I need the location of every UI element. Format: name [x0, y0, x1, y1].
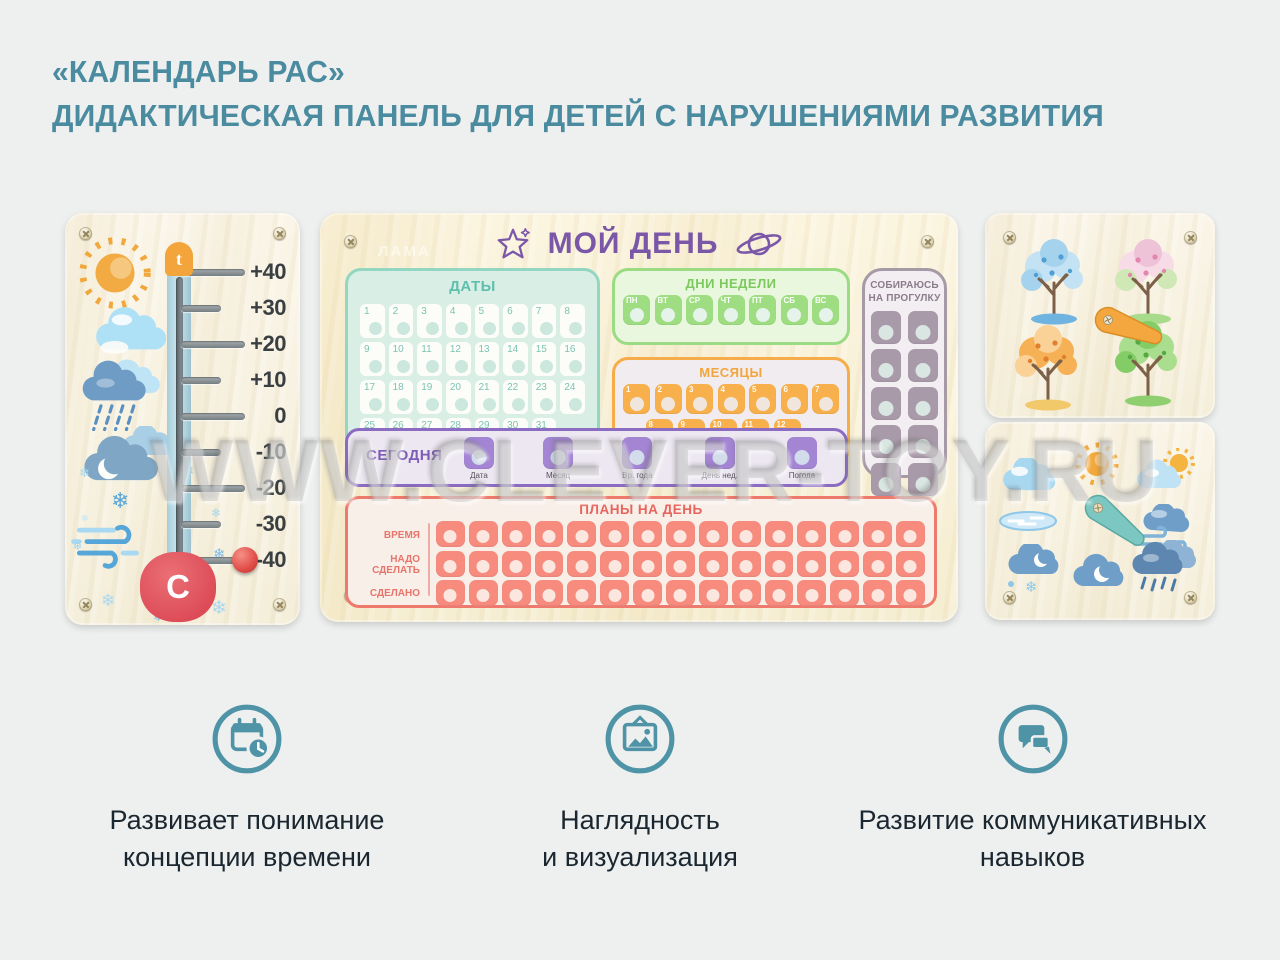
walk-grid [865, 311, 944, 496]
card-dot [838, 589, 851, 602]
today-label: СЕГОДНЯ [366, 447, 454, 464]
plan-card [567, 551, 596, 577]
date-number: 23 [536, 382, 547, 393]
thermo-tick-icon [181, 521, 221, 528]
date-slot-dot [426, 360, 439, 373]
plan-card [863, 551, 892, 577]
thermo-tick-icon [181, 413, 245, 420]
today-slot-label: Вр. года [622, 471, 652, 480]
thermo-scale-row: +40 [181, 265, 286, 279]
thermo-scale-label: -20 [256, 475, 286, 501]
card-dot [630, 308, 644, 322]
month-card: 7 [812, 384, 839, 414]
plan-card [666, 521, 695, 547]
date-number: 24 [564, 382, 575, 393]
thermometer-bulb-symbol: C [166, 568, 190, 606]
date-slot-dot [369, 398, 382, 411]
card-dot [543, 530, 556, 543]
snowflake-icon: ❄ [101, 593, 115, 610]
plans-divider [428, 523, 430, 596]
weekday-label: СБ [784, 296, 796, 305]
month-card: 1 [623, 384, 650, 414]
today-slot: День нед. [702, 437, 738, 480]
date-number: 2 [393, 306, 399, 317]
month-number: 3 [689, 385, 693, 394]
snowflake-icon: ❄ [73, 541, 82, 552]
weather-board: ❄ [985, 422, 1215, 620]
card-dot [510, 560, 523, 573]
plan-card [896, 551, 925, 577]
plan-card [765, 521, 794, 547]
walk-section: СОБИРАЮСЬ НА ПРОГУЛКУ [862, 268, 947, 478]
thermometer-bulb: C [140, 552, 216, 622]
plan-card [666, 551, 695, 577]
date-number: 18 [393, 382, 404, 393]
walk-card [908, 349, 938, 382]
date-slot-dot [455, 322, 468, 335]
today-section: СЕГОДНЯ ДатаМесяцВр. годаДень нед.Погода [345, 428, 848, 487]
page-title-line2: ДИДАКТИЧЕСКАЯ ПАНЕЛЬ ДЛЯ ДЕТЕЙ С НАРУШЕН… [52, 94, 1104, 138]
card-dot [630, 450, 645, 465]
plans-cells [436, 521, 925, 610]
date-cell: 20 [446, 380, 471, 414]
card-dot [819, 397, 833, 411]
plan-card [469, 580, 498, 606]
today-slot-label: Месяц [546, 471, 570, 480]
date-slot-dot [569, 322, 582, 335]
date-cell: 13 [475, 342, 500, 376]
card-dot [916, 477, 931, 492]
plan-card [567, 580, 596, 606]
page: «КАЛЕНДАРЬ РАС» ДИДАКТИЧЕСКАЯ ПАНЕЛЬ ДЛЯ… [0, 0, 1280, 960]
date-number: 11 [421, 344, 431, 355]
date-slot-dot [483, 398, 496, 411]
card-dot [916, 439, 931, 454]
date-cell: 17 [360, 380, 385, 414]
card-dot [674, 530, 687, 543]
date-cell: 21 [475, 380, 500, 414]
plan-card [502, 580, 531, 606]
plan-card [830, 580, 859, 606]
card-dot [608, 530, 621, 543]
thermo-scale-row: -30 [181, 517, 286, 531]
walk-card [908, 463, 938, 496]
thermo-scale-label: 0 [274, 403, 286, 429]
cloud-moon-icon [1069, 552, 1127, 590]
card-dot [879, 325, 894, 340]
date-slot-dot [540, 360, 553, 373]
plan-card [797, 521, 826, 547]
date-number: 15 [536, 344, 547, 355]
thermo-tick-icon [181, 485, 245, 492]
month-card: 3 [686, 384, 713, 414]
plans-row [436, 551, 925, 577]
plan-card [896, 580, 925, 606]
card-dot [641, 530, 654, 543]
date-slot-dot [483, 360, 496, 373]
date-slot-dot [455, 398, 468, 411]
thermometer-slider-knob [232, 547, 258, 573]
months-row1: 1234567 [623, 384, 839, 414]
plan-card [732, 551, 761, 577]
today-slot-label: Дата [470, 471, 488, 480]
date-number: 16 [564, 344, 575, 355]
weekday-label: ПТ [752, 296, 763, 305]
card-dot [756, 397, 770, 411]
today-slot: Месяц [543, 437, 573, 480]
page-title: «КАЛЕНДАРЬ РАС» ДИДАКТИЧЕСКАЯ ПАНЕЛЬ ДЛЯ… [52, 50, 1104, 138]
card-dot [756, 308, 770, 322]
screw-icon [273, 227, 286, 240]
today-slot-label: День нед. [702, 471, 738, 480]
card-dot [879, 439, 894, 454]
card-dot [904, 560, 917, 573]
card-dot [904, 530, 917, 543]
thermo-scale-row: +10 [181, 373, 286, 387]
plans-section: ПЛАНЫ НА ДЕНЬ ВРЕМЯНАДО СДЕЛАТЬСДЕЛАНО [345, 496, 937, 608]
date-slot-dot [569, 398, 582, 411]
date-number: 6 [507, 306, 513, 317]
card-dot [740, 589, 753, 602]
date-number: 10 [393, 344, 404, 355]
card-dot [773, 560, 786, 573]
today-card [543, 437, 573, 469]
card-dot [608, 589, 621, 602]
plan-card [732, 521, 761, 547]
date-slot-dot [540, 398, 553, 411]
plan-card [765, 551, 794, 577]
today-card [705, 437, 735, 469]
thermometer-board: ❄❄❄❄❄❄❄❄❄❄❄ t +40+30+20+100-10-20-30-40 … [65, 213, 300, 625]
card-dot [575, 560, 588, 573]
today-card [622, 437, 652, 469]
rain-cloud-icon [75, 353, 167, 435]
weekdays-row: ПНВТСРЧТПТСБВС [623, 295, 839, 325]
plan-card [830, 551, 859, 577]
plan-card [600, 521, 629, 547]
thermo-scale-label: +20 [250, 331, 286, 357]
card-dot [787, 397, 801, 411]
my-day-header: МОЙ ДЕНЬ [320, 225, 958, 263]
card-dot [674, 589, 687, 602]
card-dot [444, 589, 457, 602]
chat-icon [996, 702, 1070, 776]
card-dot [712, 450, 727, 465]
date-cell: 24 [560, 380, 585, 414]
cloud-icon [87, 301, 179, 359]
thermo-scale-row: +20 [181, 337, 286, 351]
date-number: 13 [479, 344, 490, 355]
card-dot [879, 401, 894, 416]
month-number: 7 [815, 385, 819, 394]
date-cell: 6 [503, 304, 528, 338]
thermo-scale-row: -20 [181, 481, 286, 495]
date-number: 8 [564, 306, 570, 317]
card-dot [630, 397, 644, 411]
weekday-label: ПН [626, 296, 638, 305]
plan-card [600, 551, 629, 577]
plan-card [863, 580, 892, 606]
date-cell: 11 [417, 342, 442, 376]
date-cell: 19 [417, 380, 442, 414]
plan-card [896, 521, 925, 547]
date-number: 5 [479, 306, 485, 317]
plan-card [633, 521, 662, 547]
walk-card [908, 311, 938, 344]
thermo-scale-row: +30 [181, 301, 286, 315]
month-number: 4 [721, 385, 725, 394]
date-number: 4 [450, 306, 456, 317]
snowflake-icon: ❄ [111, 491, 129, 513]
month-card: 4 [718, 384, 745, 414]
today-slot: Дата [464, 437, 494, 480]
card-dot [510, 589, 523, 602]
today-card [787, 437, 817, 469]
thermo-scale-label: +10 [250, 367, 286, 393]
feature-caption: Развивает понимание концепции времени [110, 802, 385, 876]
card-dot [904, 589, 917, 602]
card-dot [641, 589, 654, 602]
plans-row-label: СДЕЛАНО [354, 579, 420, 608]
date-number: 12 [450, 344, 461, 355]
plans-row-labels: ВРЕМЯНАДО СДЕЛАТЬСДЕЛАНО [354, 521, 420, 608]
walk-card [871, 387, 901, 420]
date-number: 1 [364, 306, 370, 317]
date-slot-dot [369, 322, 382, 335]
walk-card [871, 425, 901, 458]
plan-card [535, 551, 564, 577]
date-slot-dot [397, 398, 410, 411]
date-number: 17 [364, 382, 375, 393]
weekday-label: ВТ [658, 296, 668, 305]
plans-row-label: ВРЕМЯ [354, 521, 420, 550]
weekday-card: СР [686, 295, 713, 325]
card-dot [740, 560, 753, 573]
snowflake-icon: ❄ [79, 467, 90, 480]
date-slot-dot [397, 360, 410, 373]
dates-title: ДАТЫ [348, 278, 597, 295]
weekday-card: СБ [781, 295, 808, 325]
plan-card [699, 551, 728, 577]
date-slot-dot [426, 398, 439, 411]
card-dot [740, 530, 753, 543]
month-card: 5 [749, 384, 776, 414]
weekday-card: ПН [623, 295, 650, 325]
card-dot [707, 560, 720, 573]
card-dot [575, 530, 588, 543]
card-dot [787, 308, 801, 322]
feature-communication: Развитие коммуникативных навыков [845, 702, 1220, 876]
card-dot [575, 589, 588, 602]
weekdays-title: ДНИ НЕДЕЛИ [615, 276, 847, 291]
plan-card [797, 551, 826, 577]
month-card: 2 [655, 384, 682, 414]
cloud-icon [999, 458, 1059, 494]
card-dot [838, 530, 851, 543]
date-slot-dot [569, 360, 582, 373]
card-dot [773, 530, 786, 543]
walk-card [871, 311, 901, 344]
walk-title: СОБИРАЮСЬ НА ПРОГУЛКУ [865, 279, 944, 305]
card-dot [916, 325, 931, 340]
today-slot: Вр. года [622, 437, 652, 480]
svg-text:❄: ❄ [1025, 578, 1038, 596]
plan-card [567, 521, 596, 547]
plan-card [535, 521, 564, 547]
date-slot-dot [512, 398, 525, 411]
walk-card [908, 425, 938, 458]
thermo-tick-icon [181, 341, 245, 348]
date-cell: 14 [503, 342, 528, 376]
screw-icon [273, 598, 286, 611]
card-dot [707, 589, 720, 602]
card-dot [551, 450, 566, 465]
month-number: 2 [658, 385, 662, 394]
thermo-scale-label: +40 [250, 259, 286, 285]
card-dot [773, 589, 786, 602]
date-cell: 3 [417, 304, 442, 338]
walk-card [871, 349, 901, 382]
date-cell: 12 [446, 342, 471, 376]
winter-tree-icon [1013, 235, 1095, 325]
screw-icon [1184, 591, 1197, 604]
date-number: 19 [421, 382, 432, 393]
plan-card [436, 551, 465, 577]
feature-caption: Развитие коммуникативных навыков [858, 802, 1206, 876]
today-card [464, 437, 494, 469]
card-dot [477, 589, 490, 602]
card-dot [693, 397, 707, 411]
card-dot [871, 530, 884, 543]
weekdays-section: ДНИ НЕДЕЛИ ПНВТСРЧТПТСБВС [612, 268, 850, 345]
weekday-card: ВС [812, 295, 839, 325]
screw-icon [79, 598, 92, 611]
card-dot [444, 560, 457, 573]
date-cell: 18 [389, 380, 414, 414]
plan-card [633, 551, 662, 577]
date-slot-dot [369, 360, 382, 373]
card-dot [724, 397, 738, 411]
date-cell: 7 [532, 304, 557, 338]
plans-row [436, 580, 925, 606]
feature-caption: Наглядность и визуализация [542, 802, 738, 876]
card-dot [871, 560, 884, 573]
card-dot [805, 589, 818, 602]
date-cell: 1 [360, 304, 385, 338]
walk-card [871, 463, 901, 496]
thermo-scale-label: -10 [256, 439, 286, 465]
plan-card [830, 521, 859, 547]
card-dot [794, 450, 809, 465]
date-cell: 8 [560, 304, 585, 338]
weekday-card: ВТ [655, 295, 682, 325]
thermo-scale-label: -30 [256, 511, 286, 537]
plan-card [699, 521, 728, 547]
card-dot [879, 363, 894, 378]
card-dot [543, 589, 556, 602]
date-cell: 5 [475, 304, 500, 338]
card-dot [724, 308, 738, 322]
weekday-card: ЧТ [718, 295, 745, 325]
my-day-board: ЛАМА МОЙ ДЕНЬ ДАТЫ 123456789101112131415… [320, 213, 958, 622]
autumn-tree-icon [1007, 321, 1089, 411]
date-cell: 16 [560, 342, 585, 376]
date-slot-dot [397, 322, 410, 335]
date-cell: 9 [360, 342, 385, 376]
plan-card [633, 580, 662, 606]
snow-cloud-moon-icon: ❄ [1001, 544, 1063, 596]
date-slot-dot [455, 360, 468, 373]
date-cell: 10 [389, 342, 414, 376]
month-number: 1 [626, 385, 630, 394]
seasons-board [985, 213, 1215, 418]
plan-card [436, 521, 465, 547]
card-dot [707, 530, 720, 543]
card-dot [608, 560, 621, 573]
card-dot [477, 530, 490, 543]
date-number: 7 [536, 306, 542, 317]
date-slot-dot [426, 322, 439, 335]
today-slots: ДатаМесяцВр. годаДень нед.Погода [464, 437, 817, 480]
card-dot [819, 308, 833, 322]
plan-card [863, 521, 892, 547]
plan-card [765, 580, 794, 606]
puddle-icon [997, 510, 1059, 532]
card-dot [641, 560, 654, 573]
walk-title-line1: СОБИРАЮСЬ [865, 279, 944, 292]
months-title: МЕСЯЦЫ [615, 365, 847, 380]
thermo-scale-row: 0 [181, 409, 286, 423]
plan-card [699, 580, 728, 606]
card-dot [879, 477, 894, 492]
month-number: 5 [752, 385, 756, 394]
plan-card [469, 521, 498, 547]
weekday-label: ВС [815, 296, 826, 305]
month-number: 6 [784, 385, 788, 394]
thermo-scale-row: -10 [181, 445, 286, 459]
plans-row [436, 521, 925, 547]
card-dot [805, 530, 818, 543]
sun-behind-cloud-icon [1135, 448, 1201, 492]
date-number: 9 [364, 344, 370, 355]
thermo-tick-icon [181, 377, 221, 384]
thermometer-top-symbol: t [176, 249, 182, 270]
card-dot [805, 560, 818, 573]
walk-card [908, 387, 938, 420]
card-dot [510, 530, 523, 543]
card-dot [543, 560, 556, 573]
date-slot-dot [512, 322, 525, 335]
thermo-tick-icon [181, 305, 221, 312]
sun-icon [1071, 438, 1123, 490]
date-cell: 22 [503, 380, 528, 414]
picture-icon [603, 702, 677, 776]
date-slot-dot [512, 360, 525, 373]
plan-card [535, 580, 564, 606]
date-number: 3 [421, 306, 427, 317]
plan-card [469, 551, 498, 577]
date-cell: 23 [532, 380, 557, 414]
date-slot-dot [540, 322, 553, 335]
plan-card [436, 580, 465, 606]
plan-card [797, 580, 826, 606]
today-slot: Погода [787, 437, 817, 480]
plan-card [732, 580, 761, 606]
date-number: 21 [479, 382, 490, 393]
thermo-scale-label: -40 [256, 547, 286, 573]
date-slot-dot [483, 322, 496, 335]
card-dot [674, 560, 687, 573]
